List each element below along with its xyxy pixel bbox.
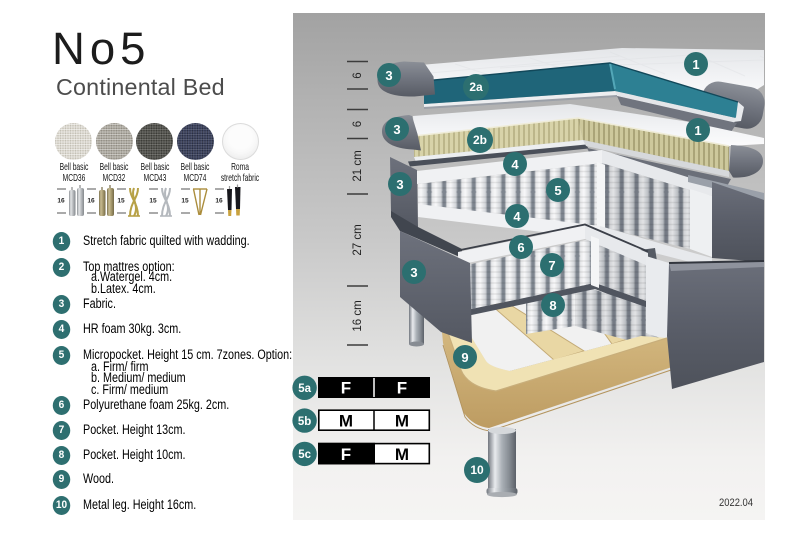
svg-text:8: 8 bbox=[549, 298, 556, 313]
svg-text:3: 3 bbox=[410, 265, 417, 280]
svg-text:4: 4 bbox=[513, 209, 521, 224]
svg-text:27 cm: 27 cm bbox=[352, 224, 364, 255]
svg-text:4: 4 bbox=[511, 157, 519, 172]
svg-text:2a: 2a bbox=[469, 80, 483, 94]
svg-text:M: M bbox=[395, 412, 409, 431]
svg-text:3: 3 bbox=[393, 122, 400, 137]
svg-text:10: 10 bbox=[470, 463, 484, 477]
svg-text:6: 6 bbox=[352, 72, 364, 78]
svg-text:6: 6 bbox=[517, 240, 524, 255]
svg-text:M: M bbox=[339, 412, 353, 431]
svg-text:3: 3 bbox=[385, 68, 392, 83]
svg-text:9: 9 bbox=[461, 350, 468, 365]
svg-text:M: M bbox=[395, 445, 409, 464]
svg-text:3: 3 bbox=[396, 177, 403, 192]
svg-text:21 cm: 21 cm bbox=[352, 150, 364, 181]
svg-text:5b: 5b bbox=[298, 416, 311, 428]
svg-text:16 cm: 16 cm bbox=[352, 300, 364, 331]
svg-text:1: 1 bbox=[694, 123, 701, 138]
svg-text:2b: 2b bbox=[473, 133, 487, 147]
svg-text:F: F bbox=[341, 379, 351, 398]
svg-text:F: F bbox=[341, 445, 351, 464]
svg-text:2022.04: 2022.04 bbox=[719, 497, 753, 509]
svg-text:1: 1 bbox=[692, 57, 699, 72]
svg-text:7: 7 bbox=[548, 258, 555, 273]
svg-text:5: 5 bbox=[554, 183, 561, 198]
svg-text:5a: 5a bbox=[298, 383, 311, 395]
svg-text:F: F bbox=[397, 379, 407, 398]
svg-text:6: 6 bbox=[352, 121, 364, 127]
svg-text:5c: 5c bbox=[298, 449, 311, 461]
